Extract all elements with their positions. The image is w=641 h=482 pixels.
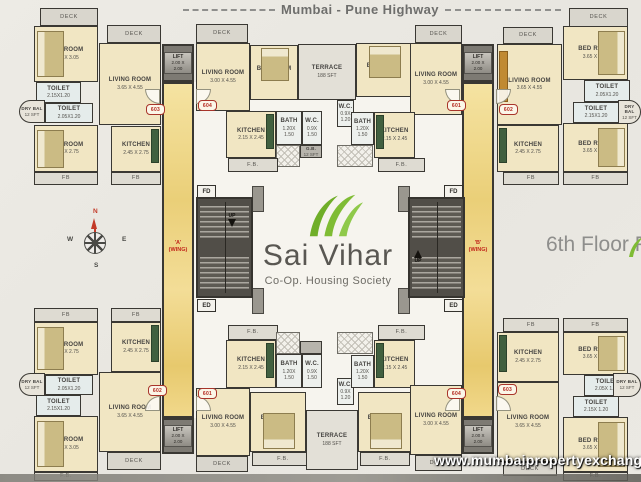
- b602-toilet-2: TOILET2.15X1.20: [573, 102, 619, 123]
- a603-deck-2: DECK: [107, 25, 161, 43]
- a602-flower-bed-2: FB: [111, 308, 161, 322]
- b602-kitchen: KITCHEN2.45 X 2.75: [497, 125, 559, 172]
- a602-deck: DECK: [107, 452, 161, 470]
- a603-toilet-2: TOILET2.05X1.20: [45, 103, 93, 123]
- a603-bedroom-2: BED ROOM3.65 X 2.75: [34, 125, 98, 172]
- a603-kitchen: KITCHEN2.45 X 2.75: [111, 126, 161, 172]
- a601-wc: W.C.0.9X 1.50: [302, 354, 322, 388]
- b604-bath: BATH1.20X 1.50: [351, 355, 374, 388]
- highway-header: Mumbai - Pune Highway: [183, 2, 561, 17]
- a603-flower-bed-2: FB: [111, 172, 161, 185]
- staircase-wing-b: [408, 197, 465, 298]
- a603-dry-balcony: DRY BAL12 SFT: [19, 100, 45, 123]
- a602-living-room: LIVING ROOM3.65 X 4.55: [99, 372, 161, 452]
- flat-number-601: 601: [198, 388, 217, 399]
- flat-number-603: 603: [498, 384, 517, 395]
- flat-number-603: 603: [146, 104, 165, 115]
- b601-deck: DECK: [415, 25, 462, 43]
- a602-kitchen: KITCHEN2.45 X 2.75: [111, 322, 161, 372]
- a601-flower-bed-2: F.B.: [252, 452, 314, 466]
- bed-furniture: [598, 128, 625, 168]
- wing-b-label: 'B'(WING): [464, 240, 492, 255]
- b603-bedroom-2: BED ROOM3.65 X 2.75: [563, 332, 628, 375]
- b603-toilet-2: TOILET2.15X 1.20: [573, 396, 619, 417]
- b601-bedroom: BED ROOM3.00 X 3.00: [356, 43, 412, 97]
- society-name: Sai Vihar: [240, 241, 416, 271]
- a602-toilet-2: TOILET2.05X1.20: [45, 375, 93, 395]
- bed-furniture: [370, 413, 401, 449]
- highway-label: Mumbai - Pune Highway: [281, 2, 439, 17]
- b602-toilet-1: TOILET2.05X1.20: [584, 80, 630, 102]
- fire-door-badge: FD: [444, 185, 463, 198]
- b604-bedroom: BED ROOM3.00 X 3.00: [358, 392, 412, 452]
- bed-furniture: [369, 46, 401, 78]
- b604-flower-bed: F.B.: [378, 325, 425, 340]
- b601-bath: BATH1.20X 1.50: [351, 112, 374, 145]
- b601-hatch: [337, 145, 373, 167]
- a602-dry-balcony: DRY BAL12 SFT: [19, 373, 45, 396]
- compass-west: W: [67, 236, 73, 243]
- a604-bedroom: BED ROOM3.00 X 3.00: [250, 45, 298, 100]
- wall-block: [252, 288, 264, 314]
- a601-deck: DECK: [196, 456, 248, 472]
- counter-furniture: [151, 129, 159, 163]
- counter-furniture: [376, 343, 384, 378]
- a601-duct: [300, 341, 322, 354]
- bottom-shadow-band: [0, 474, 641, 482]
- lift-bottom-left: LIFT2.00 X 2.00: [162, 418, 194, 454]
- counter-furniture: [266, 343, 274, 378]
- society-subtitle: Co-Op. Housing Society: [240, 275, 416, 287]
- b602-deck-2: DECK: [503, 27, 553, 44]
- compass-east: E: [122, 236, 126, 243]
- wing-b-corridor: 'B'(WING): [462, 82, 494, 418]
- bed-furniture: [37, 130, 64, 168]
- a604-kitchen: KITCHEN2.15 X 2.45: [226, 111, 276, 158]
- a604-hatch: [276, 145, 300, 167]
- compass-rose: N W E S: [66, 210, 128, 274]
- bed-furniture: [37, 421, 64, 466]
- bed-furniture: [598, 31, 625, 75]
- a604-deck: DECK: [196, 24, 248, 43]
- bed-furniture: [263, 413, 295, 449]
- exit-door-badge: ED: [197, 299, 216, 312]
- flat-number-601: 601: [447, 100, 466, 111]
- a604-wc: W.C.0.9X 1.50: [302, 111, 322, 145]
- a603-deck: DECK: [40, 8, 98, 26]
- counter-furniture: [376, 115, 384, 149]
- flat-number-602: 602: [148, 385, 167, 396]
- a603-bedroom-1: BED ROOM3.65 X 3.05: [34, 26, 98, 82]
- arrow-down-icon: [228, 219, 236, 227]
- compass-north: N: [93, 208, 98, 215]
- lift-bottom-right: LIFT2.00 X 2.00: [462, 418, 494, 454]
- compass-south: S: [94, 262, 98, 269]
- a604-bath: BATH1.20X 1.50: [276, 111, 302, 145]
- b604-flower-bed-2: F.B.: [360, 452, 410, 466]
- bed-furniture: [598, 336, 625, 371]
- a603-flower-bed-1: FB: [34, 172, 98, 185]
- counter-furniture: [499, 335, 507, 372]
- b604-hatch: [337, 332, 373, 354]
- bottom-terrace: TERRACE188 SFT: [306, 410, 358, 470]
- a602-flower-bed-1: FB: [34, 308, 98, 322]
- counter-furniture: [266, 114, 274, 148]
- decorative-leaf-icon: [627, 237, 641, 257]
- flat-number-602: 602: [499, 104, 518, 115]
- wing-a-corridor: 'A'(WING): [162, 82, 194, 418]
- b601-kitchen: KITCHEN2.15 X 2.45: [374, 112, 415, 158]
- counter-furniture: [151, 325, 159, 362]
- a601-kitchen: KITCHEN2.15 X 2.45: [226, 340, 276, 388]
- a601-bedroom: BED ROOM3.00 X 3.00: [250, 392, 306, 452]
- flat-number-604: 604: [198, 100, 217, 111]
- a601-flower-bed: F.B.: [228, 325, 278, 340]
- b603-flower-bed-1: FB: [503, 318, 559, 332]
- dashed-road-line: [183, 9, 275, 11]
- b603-dry-balcony: DRY BAL12 SFT: [613, 373, 641, 397]
- flat-number-604: 604: [447, 388, 466, 399]
- a602-bedroom-2: BED ROOM3.65 X 2.75: [34, 322, 98, 375]
- wing-a-label: 'A'(WING): [164, 240, 192, 255]
- bed-furniture: [37, 327, 64, 370]
- dashed-road-line: [445, 9, 561, 11]
- watermark: www.mumbaipropertyexchange.com: [434, 452, 641, 468]
- b603-kitchen: KITCHEN2.45 X 2.75: [497, 332, 559, 382]
- b602-bedroom-1: BED ROOM3.65 X 3.05: [563, 26, 628, 80]
- bed-furniture: [261, 48, 289, 81]
- exit-door-badge: ED: [444, 299, 463, 312]
- b601-flower-bed: F.B.: [378, 158, 425, 172]
- a601-bath: BATH1.20X 1.50: [276, 354, 302, 388]
- b602-bedroom-2: BED ROOM3.65 X 2.75: [563, 123, 628, 172]
- a601-hatch: [276, 332, 300, 354]
- b604-kitchen: KITCHEN2.15 X 2.45: [374, 340, 415, 388]
- a604-flower-bed: F.B.: [228, 158, 278, 172]
- fire-door-badge: FD: [197, 185, 216, 198]
- b602-dry-balcony: DRY BAL12 SFT: [618, 100, 641, 124]
- floor-plan-page: Mumbai - Pune Highway DECKBED ROOM3.65 X…: [0, 0, 641, 482]
- lift-top-right: LIFT2.00 X 2.00: [462, 44, 494, 82]
- a602-toilet-1: TOILET2.15X1.20: [36, 395, 81, 416]
- a604-garbage-duct: G.B.12 SFT: [300, 145, 322, 158]
- bed-furniture: [37, 31, 64, 76]
- society-logo: Sai Vihar Co-Op. Housing Society: [240, 192, 416, 287]
- top-terrace: TERRACE188 SFT: [298, 44, 356, 100]
- compass-star-icon: [84, 232, 106, 254]
- leaf-logo-icon: [306, 192, 364, 238]
- b602-flower-bed-2: FB: [563, 172, 628, 185]
- stairs-up-marker: UP: [228, 213, 236, 227]
- lift-top-left: LIFT2.00 X 2.00: [162, 44, 194, 82]
- b603-flower-bed-2: FB: [563, 318, 628, 332]
- b602-deck: DECK: [569, 8, 628, 27]
- a602-bedroom-1: BED ROOM3.65 X 3.05: [34, 416, 98, 472]
- counter-furniture: [499, 128, 507, 162]
- b602-flower-bed-1: FB: [503, 172, 559, 185]
